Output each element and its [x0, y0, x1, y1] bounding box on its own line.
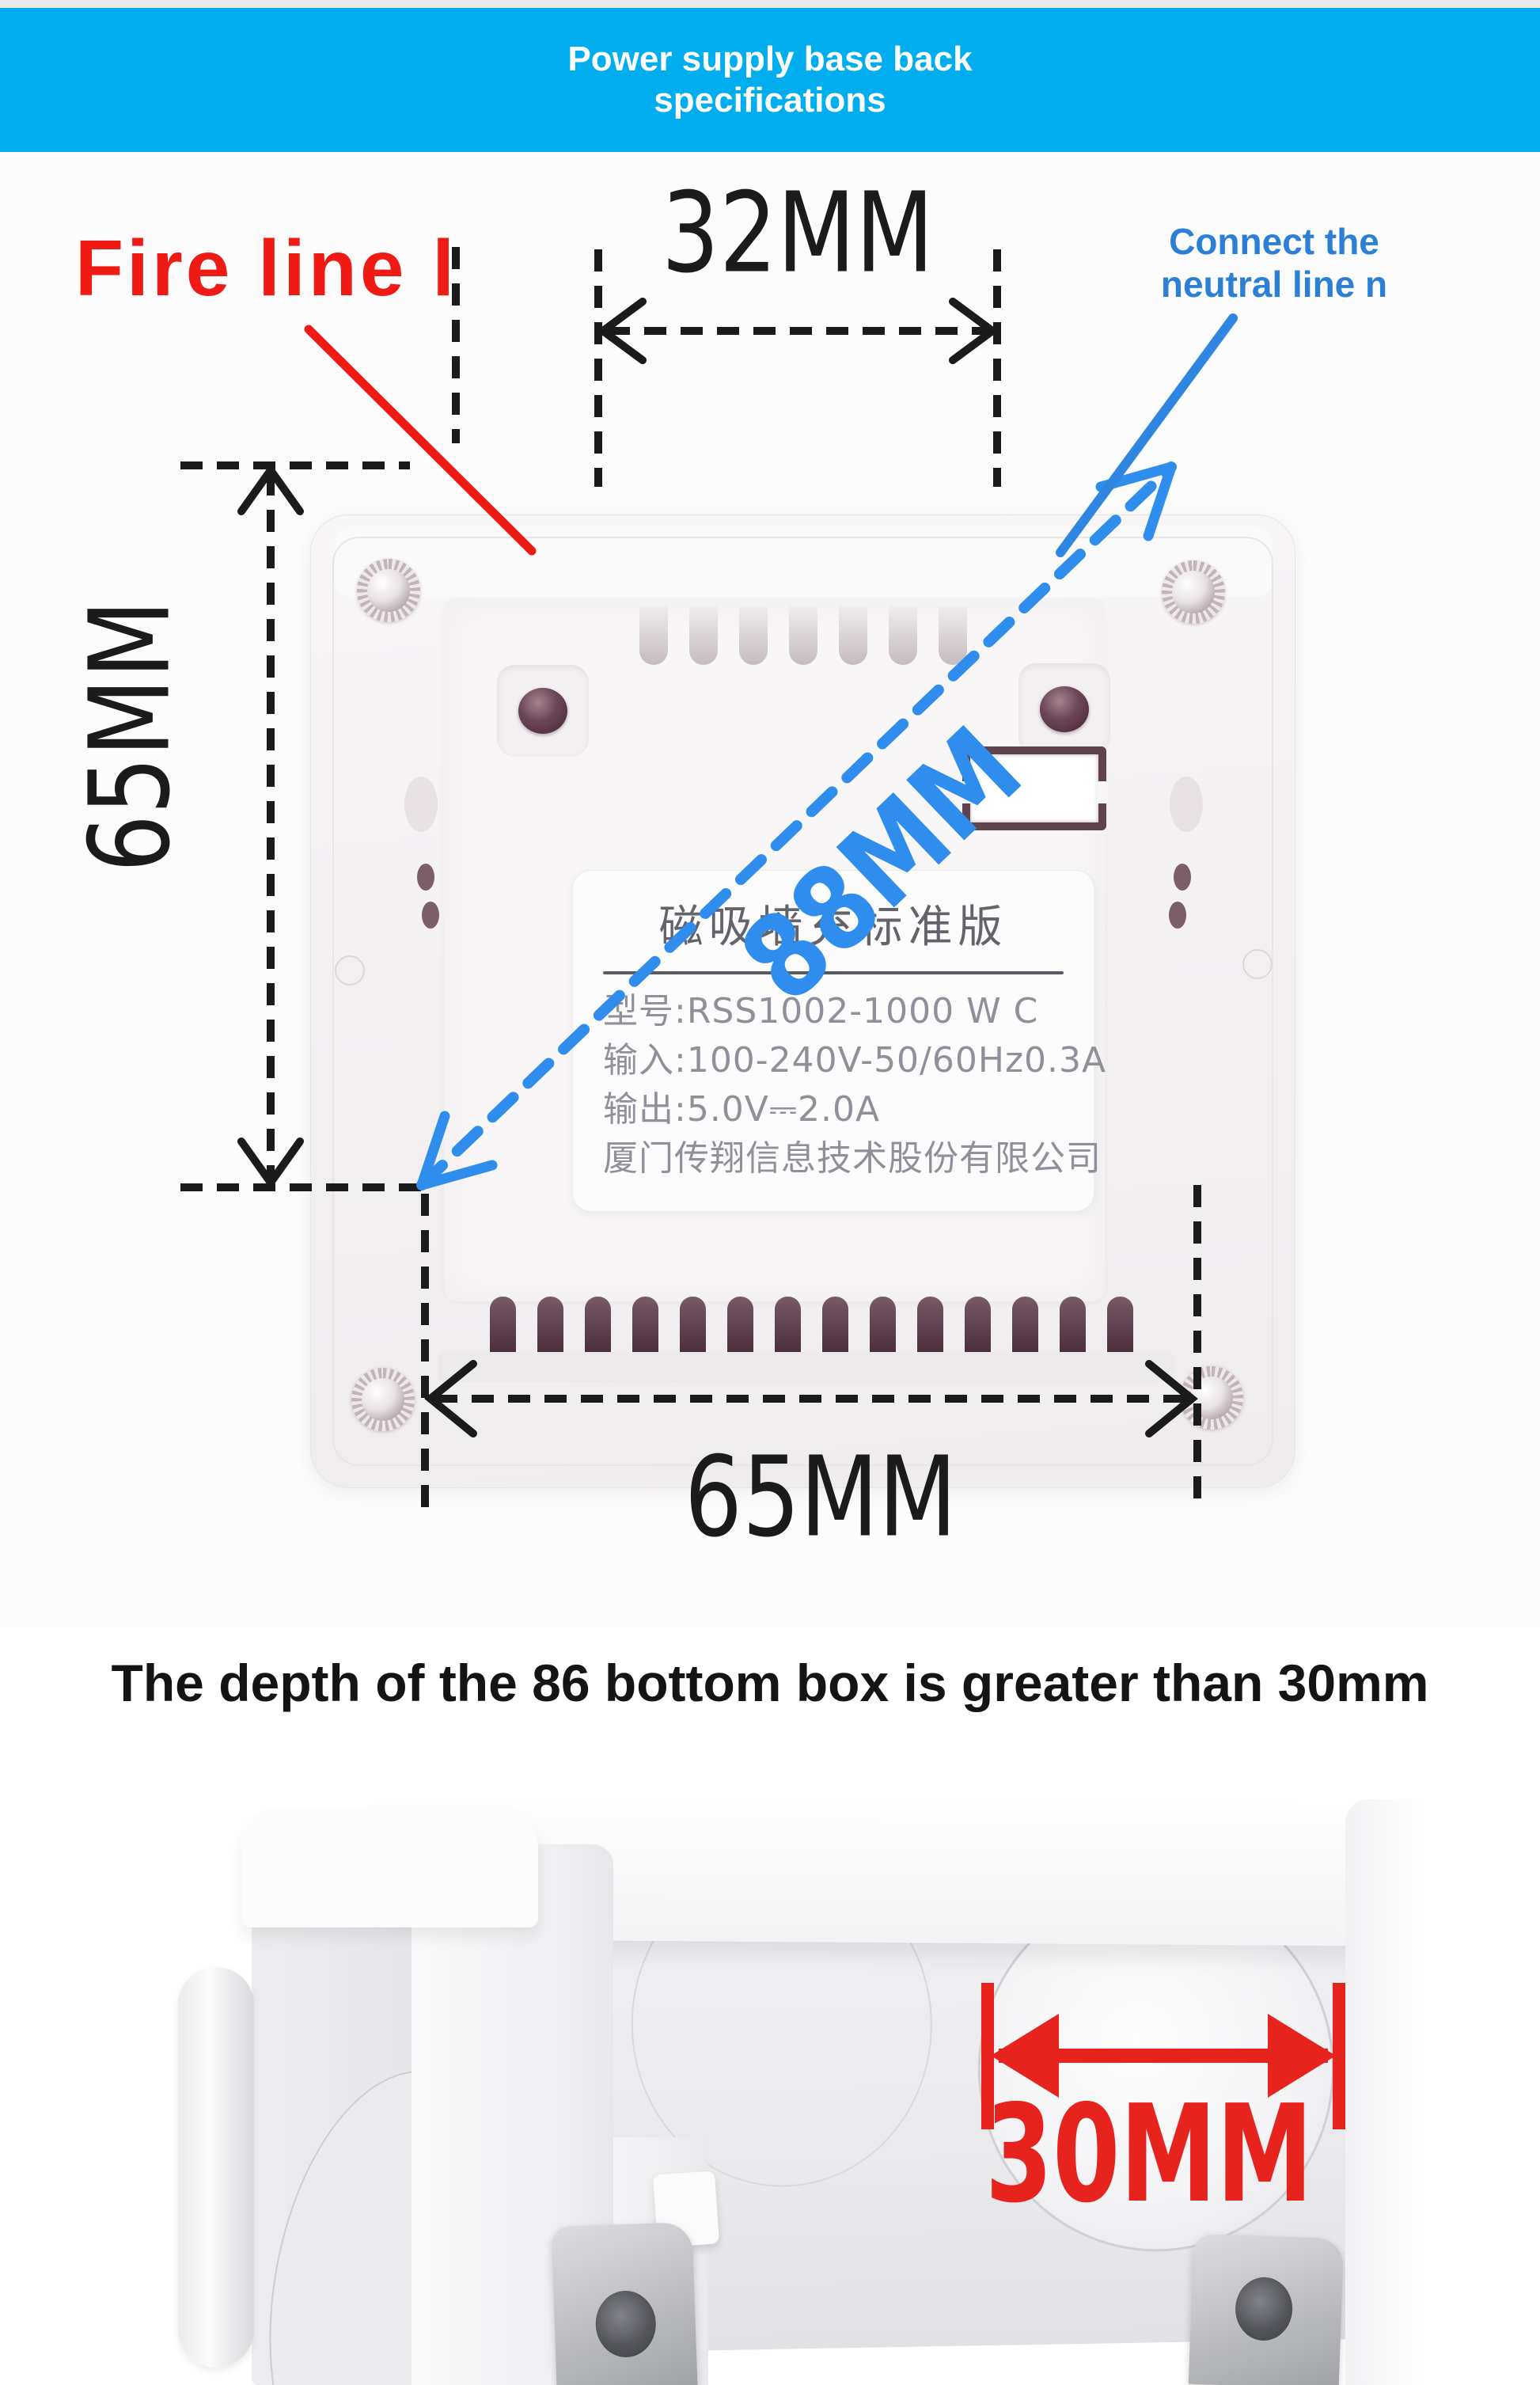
fire-pointer-line [309, 329, 532, 551]
dimension-30mm-label: 30MM [985, 2076, 1313, 2233]
neutral-pointer-line [1060, 318, 1233, 553]
page: Power supply base back specifications [0, 0, 1540, 2385]
dimension-65mm-bottom-label: 65MM [685, 1434, 957, 1563]
neutral-line-label-line2: neutral line n [1108, 263, 1440, 306]
annotation-layer [0, 0, 1540, 2385]
dimension-88mm-lines [422, 467, 1171, 1185]
dimension-32mm-label: 32MM [662, 169, 934, 298]
section-headline: The depth of the 86 bottom box is greate… [0, 1653, 1540, 1713]
fire-line-label: Fire line l [75, 223, 457, 314]
neutral-line-label-line1: Connect the [1108, 220, 1440, 263]
dimension-65mm-left-lines [180, 247, 456, 1187]
dimension-65mm-left-label: 65MM [66, 600, 195, 872]
neutral-line-label: Connect the neutral line n [1108, 220, 1440, 306]
